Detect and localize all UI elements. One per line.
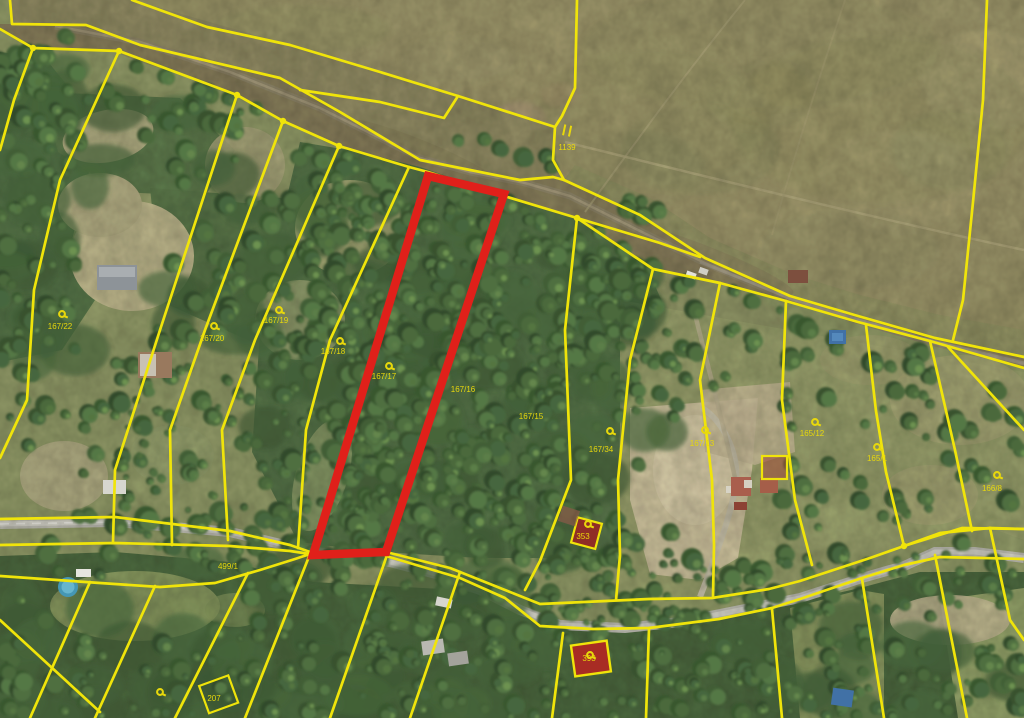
svg-text:165/12: 165/12: [800, 429, 825, 438]
svg-text:167/17: 167/17: [372, 372, 397, 381]
svg-text:393: 393: [582, 654, 596, 663]
svg-text:167/18: 167/18: [321, 347, 346, 356]
svg-text:167/16: 167/16: [451, 385, 476, 394]
svg-text:1139: 1139: [558, 143, 576, 152]
svg-text:167/13: 167/13: [690, 439, 715, 448]
svg-text:167/15: 167/15: [519, 412, 544, 421]
svg-text:353: 353: [576, 532, 590, 541]
svg-text:499/1: 499/1: [218, 562, 239, 571]
svg-text:167/22: 167/22: [48, 322, 73, 331]
svg-text:167/19: 167/19: [264, 316, 289, 325]
svg-text:167/34: 167/34: [589, 445, 614, 454]
svg-text:165/1: 165/1: [867, 454, 888, 463]
svg-text:167/20: 167/20: [200, 334, 225, 343]
svg-text:166/8: 166/8: [982, 484, 1003, 493]
svg-text:207: 207: [207, 694, 221, 703]
